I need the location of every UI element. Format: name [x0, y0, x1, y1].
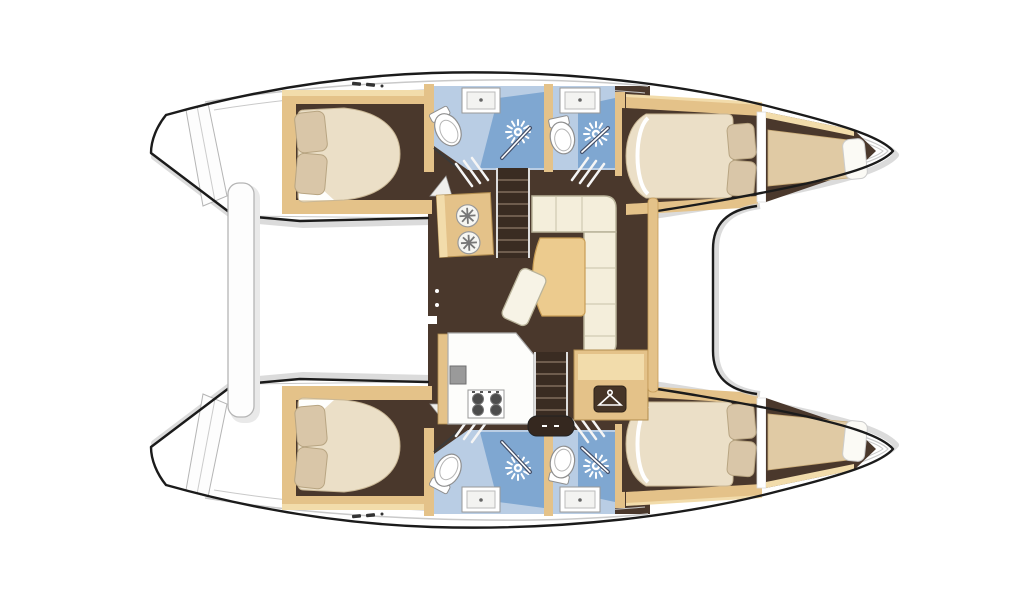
catamaran-floor-plan [0, 0, 1024, 600]
pillow [727, 123, 757, 160]
starboard-hull-staircase [528, 352, 574, 436]
pillow [294, 111, 328, 154]
pillow [726, 160, 756, 197]
galley-cabinet [438, 334, 448, 424]
bathroom-wall [424, 84, 434, 172]
entry-threshold [528, 416, 574, 436]
forward-beam [713, 206, 760, 394]
stove-four-burner-icon [468, 390, 504, 418]
forward-beam-shadow [716, 206, 760, 394]
wardrobe-cabinet [574, 350, 648, 420]
aft-cabin [282, 90, 432, 214]
round-basin-icon [456, 204, 479, 227]
pillow [294, 153, 327, 195]
boat-floor-plan-canvas [0, 0, 1024, 600]
round-basin-icon [457, 231, 480, 254]
wardrobe-panel [578, 354, 644, 380]
cabin-bulkhead [757, 112, 766, 202]
hanger-badge [594, 386, 626, 412]
sink [462, 88, 500, 113]
stern-platform [228, 183, 260, 423]
sink [560, 88, 600, 113]
galley-basin-unit [436, 193, 493, 258]
saloon-side-trim [648, 198, 658, 392]
port-hull-staircase [496, 168, 530, 258]
galley [438, 333, 534, 424]
galley-sink [450, 366, 466, 384]
stern-platform-bar [228, 183, 254, 417]
berth-mattress [768, 130, 848, 186]
cabin-frame-highlight [282, 90, 432, 96]
